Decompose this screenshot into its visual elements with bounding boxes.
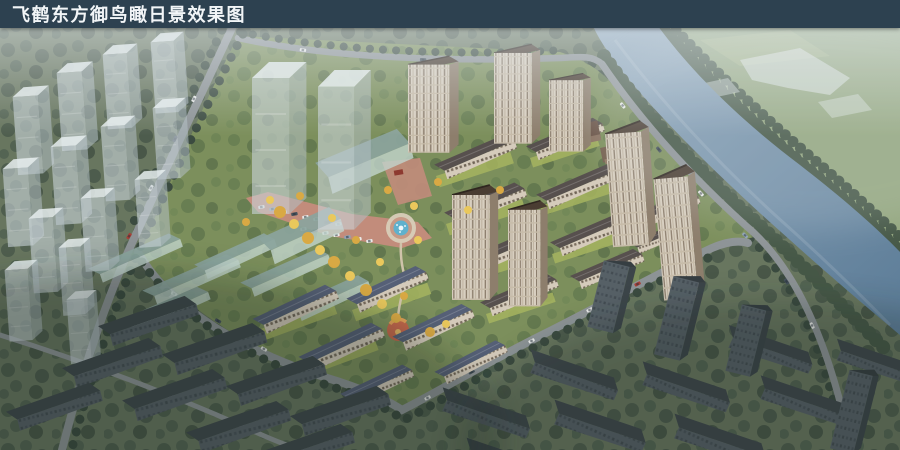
residential-tower: [452, 185, 498, 300]
fountain-jet: [399, 226, 404, 231]
aerial-rendering-canvas: [0, 0, 900, 450]
ghost-tower: [134, 170, 171, 248]
rendering-viewport: 飞鹤东方御鸟瞰日景效果图: [0, 0, 900, 450]
residential-tower: [508, 201, 548, 307]
page-title: 飞鹤东方御鸟瞰日景效果图: [0, 1, 246, 27]
title-bar: 飞鹤东方御鸟瞰日景效果图: [0, 0, 900, 28]
